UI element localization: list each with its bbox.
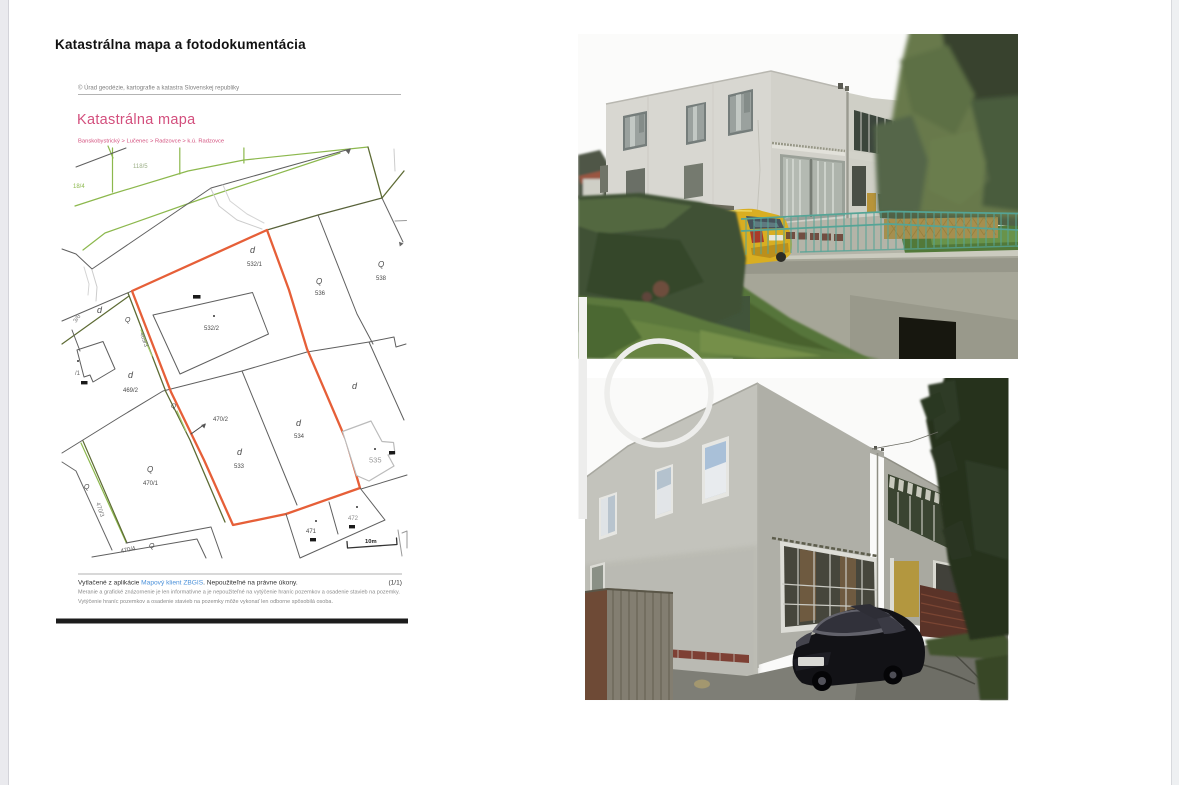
svg-text:Katastrálna mapa: Katastrálna mapa: [77, 112, 196, 128]
svg-text:472: 472: [348, 516, 359, 522]
svg-text:532/1: 532/1: [247, 262, 263, 268]
svg-text:Q: Q: [125, 317, 131, 324]
svg-text:Vytlačené z aplikácie Mapový k: Vytlačené z aplikácie Mapový klient ZBGI…: [78, 580, 298, 587]
svg-text:d: d: [128, 370, 134, 380]
svg-text:532/2: 532/2: [204, 326, 220, 332]
svg-text:Q: Q: [149, 543, 155, 550]
svg-text:/1: /1: [75, 371, 81, 377]
svg-text:10m: 10m: [365, 539, 377, 545]
svg-text:470/1: 470/1: [143, 481, 159, 487]
svg-text:© Úrad geodézie, kartografie a: © Úrad geodézie, kartografie a katastra …: [78, 85, 239, 92]
svg-text:469/3: 469/3: [138, 332, 149, 349]
svg-text:Q: Q: [171, 403, 176, 410]
svg-text:Q: Q: [84, 484, 90, 491]
svg-text:d: d: [296, 418, 302, 428]
svg-text:d: d: [250, 245, 256, 255]
svg-text:Banskobystrický > Lučenec > Ra: Banskobystrický > Lučenec > Radzovce > k…: [78, 139, 224, 145]
svg-text:535: 535: [369, 456, 382, 465]
svg-text:536: 536: [315, 291, 326, 297]
svg-text:118/5: 118/5: [133, 164, 148, 170]
svg-text:d: d: [97, 305, 103, 315]
svg-text:470/2: 470/2: [213, 417, 229, 423]
svg-text:470/3: 470/3: [94, 502, 105, 519]
svg-text:Q: Q: [316, 277, 322, 286]
svg-text:534: 534: [294, 434, 305, 440]
svg-text:Meranie a grafické znázornenie: Meranie a grafické znázornenie je len in…: [78, 590, 400, 596]
svg-text:d: d: [237, 447, 243, 457]
svg-text:3/6: 3/6: [73, 313, 83, 324]
svg-text:471: 471: [306, 529, 317, 535]
svg-text:Q: Q: [147, 465, 153, 474]
svg-text:470/4: 470/4: [120, 546, 137, 555]
svg-text:469/2: 469/2: [123, 388, 139, 394]
svg-text:Q: Q: [378, 260, 384, 269]
svg-text:538: 538: [376, 276, 387, 282]
svg-text:(1/1): (1/1): [388, 580, 402, 587]
svg-text:d: d: [352, 381, 358, 391]
svg-text:533: 533: [234, 464, 245, 470]
svg-text:Vytýčenie hraníc pozemkov a os: Vytýčenie hraníc pozemkov a osadenie sta…: [78, 599, 333, 605]
svg-text:18/4: 18/4: [73, 184, 85, 190]
